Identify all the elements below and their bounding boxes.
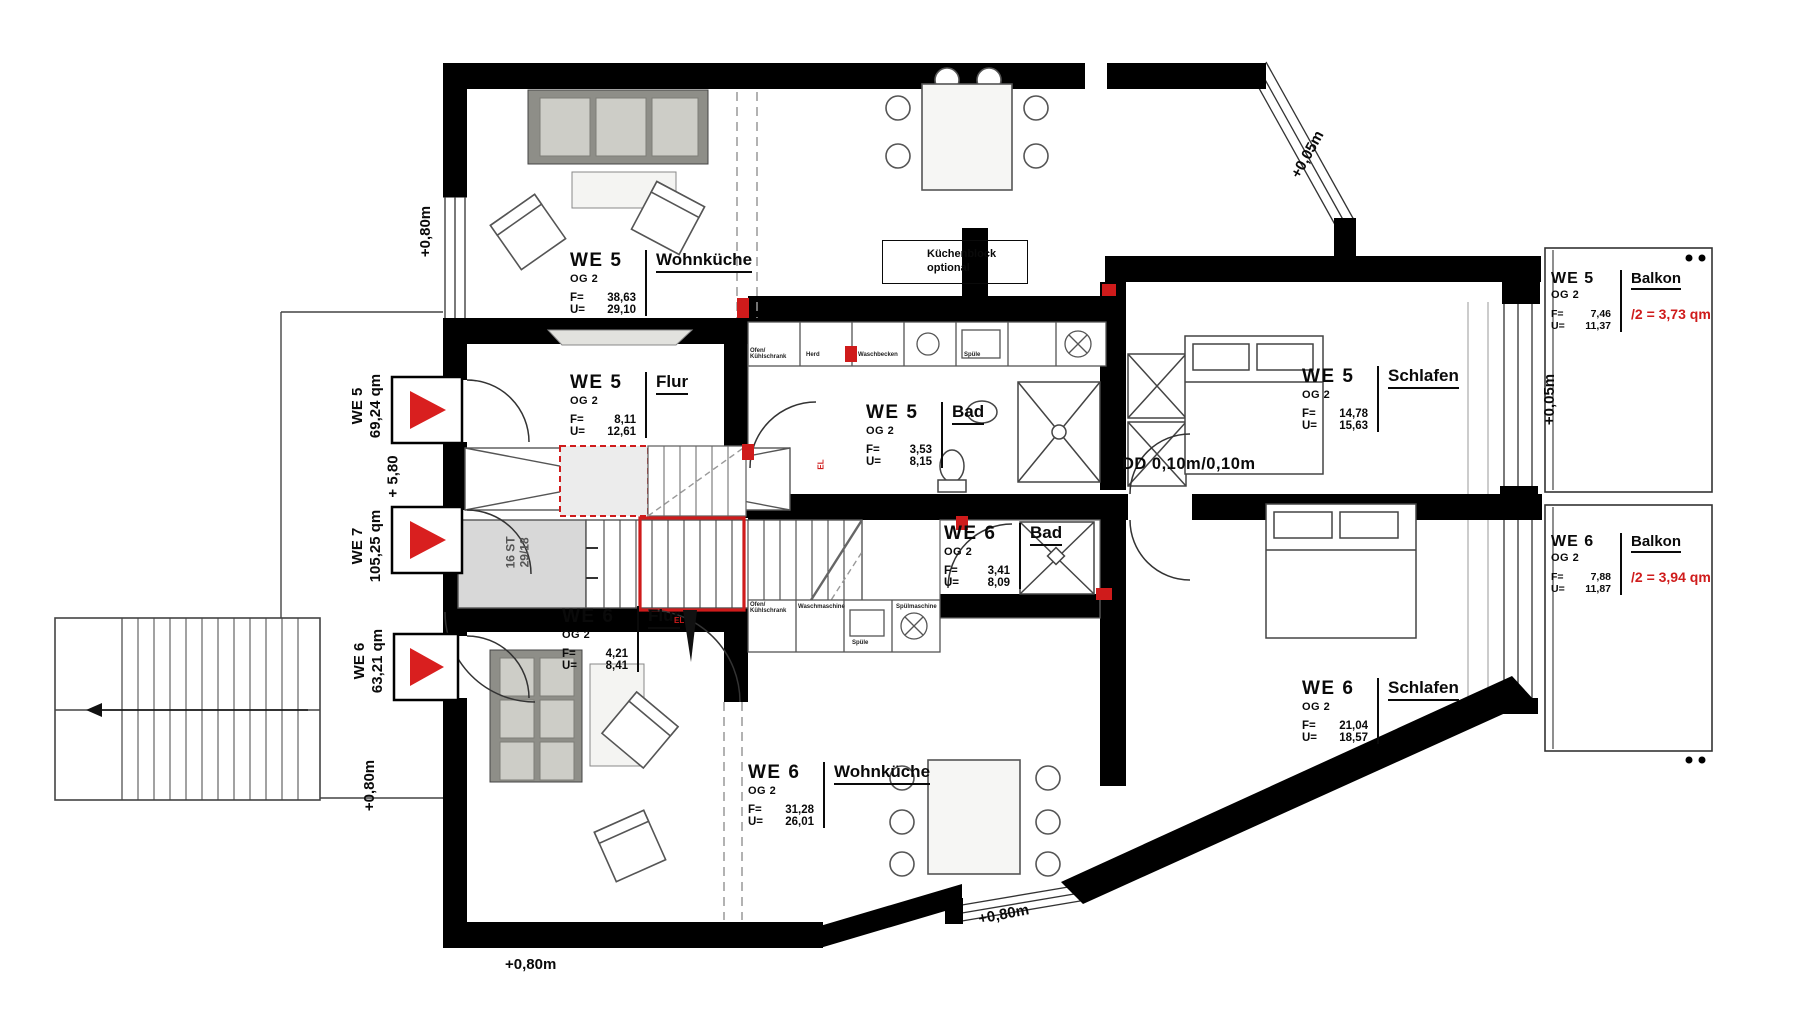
we5-kitchen-counter: [748, 322, 1106, 366]
room-label-we5-flur: WE 5 OG 2 F=8,11 U=12,61 Flur: [570, 372, 688, 438]
we6-living-furniture: [490, 650, 678, 882]
floor-plan: WE 5 OG 2 F=38,63 U=29,10 Wohnküche WE 5…: [0, 0, 1800, 1013]
elevation-mid-left: + 5,80: [385, 455, 402, 497]
half-area-note: /2 = 3,73 qm: [1631, 306, 1711, 322]
room-name: Schlafen: [1388, 366, 1459, 389]
room-name: Schlafen: [1388, 678, 1459, 701]
room-name: Balkon: [1631, 270, 1681, 290]
unit-label: WE 5: [570, 250, 636, 272]
room-label-we6-schlafen: WE 6 OG 2 F=21,04 U=18,57 Schlafen: [1302, 678, 1459, 744]
room-name: Wohnküche: [656, 250, 752, 273]
apartment-label-we7: WE 7 105,25 qm: [349, 486, 385, 606]
floor-label: OG 2: [570, 273, 636, 285]
elevation-top-left: +0,80m: [417, 206, 434, 257]
room-label-we6-balkon: WE 6 OG 2 F=7,88 U=11,87 Balkon /2 = 3,9…: [1551, 533, 1711, 595]
appliance-label: Spüle: [964, 352, 1008, 358]
half-area-note: /2 = 3,94 qm: [1631, 569, 1711, 585]
exterior-staircase: [55, 618, 320, 800]
room-label-we6-flur: WE 6 OG 2 F=4,21 U=8,41 Flur: [562, 606, 680, 672]
elevation-right-side: +0,05m: [1541, 374, 1558, 425]
room-name: Balkon: [1631, 533, 1681, 553]
room-label-we6-bad: WE 6 OG 2 F=3,41 U=8,09 Bad: [944, 523, 1062, 589]
room-label-we5-schlafen: WE 5 OG 2 F=14,78 U=15,63 Schlafen: [1302, 366, 1459, 432]
appliance-label: Spülmaschine: [896, 604, 940, 610]
room-name: Bad: [1030, 523, 1062, 546]
el-marker-we5: EL: [817, 459, 826, 469]
elevation-bottom-left-v: +0,80m: [361, 760, 378, 811]
apartment-label-we6: WE 6 63,21 qm: [351, 601, 387, 721]
room-label-we5-bad: WE 5 OG 2 F=3,53 U=8,15 Bad: [866, 402, 984, 468]
floor-plan-drawing: [0, 0, 1800, 1013]
room-name: Wohnküche: [834, 762, 930, 785]
room-name: Flur: [656, 372, 688, 395]
kuechenblock-note: Küchenblock optional: [882, 240, 1028, 284]
appliance-label: Herd: [806, 352, 850, 358]
room-label-we5-wohnkueche: WE 5 OG 2 F=38,63 U=29,10 Wohnküche: [570, 250, 752, 316]
appliance-label: Ofen/ Kühlschrank: [750, 602, 794, 615]
appliance-label: Spüle: [852, 640, 896, 646]
dd-note: DD 0,10m/0,10m: [1122, 455, 1256, 474]
room-label-we5-balkon: WE 5 OG 2 F=7,46 U=11,37 Balkon /2 = 3,7…: [1551, 270, 1711, 332]
appliance-label: Waschmaschine: [798, 604, 842, 610]
elevation-bottom-left-h: +0,80m: [505, 956, 556, 973]
room-label-we6-wohnkueche: WE 6 OG 2 F=31,28 U=26,01 Wohnküche: [748, 762, 930, 828]
apartment-label-we5: WE 5 69,24 qm: [349, 346, 385, 466]
we6-bedroom-furniture: [1266, 504, 1416, 638]
appliance-label: Waschbecken: [858, 352, 902, 358]
stair-count-label: 16 ST 29/18: [504, 512, 533, 592]
room-name: Bad: [952, 402, 984, 425]
el-marker-we6: EL: [674, 616, 684, 625]
entrance-markers: [392, 377, 462, 700]
appliance-label: Ofen/ Kühlschrank: [750, 348, 794, 361]
